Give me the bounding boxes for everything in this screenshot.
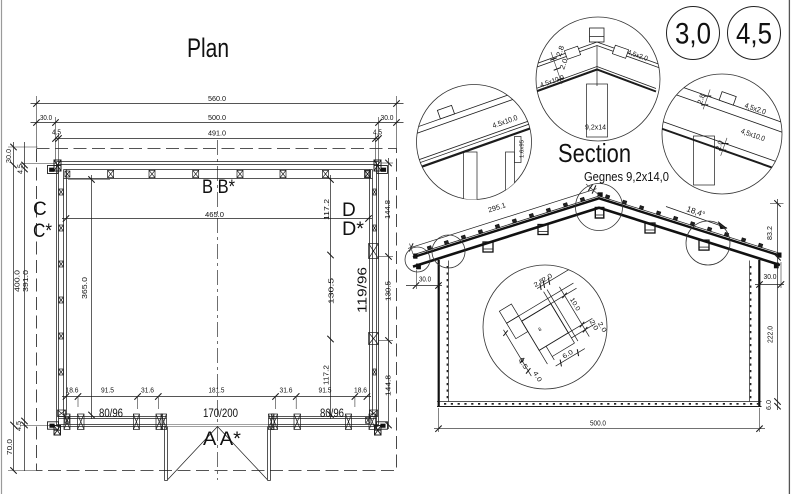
svg-text:1.6x95: 1.6x95 [520, 140, 526, 158]
svg-text:Section: Section [558, 138, 631, 168]
svg-text:Gegnes 9,2x14,0: Gegnes 9,2x14,0 [584, 170, 669, 184]
svg-text:D: D [342, 200, 356, 221]
svg-text:80/96: 80/96 [320, 406, 344, 420]
svg-text:391.0: 391.0 [21, 270, 30, 292]
svg-text:4.5: 4.5 [52, 128, 61, 137]
svg-text:Plan: Plan [187, 33, 229, 63]
svg-text:18.6: 18.6 [66, 386, 79, 395]
svg-text:465.0: 465.0 [205, 212, 224, 219]
svg-text:C: C [33, 199, 47, 220]
svg-text:130.5: 130.5 [384, 281, 393, 301]
svg-text:30.0: 30.0 [419, 275, 431, 284]
svg-text:31.6: 31.6 [141, 386, 154, 395]
svg-text:119/96: 119/96 [355, 267, 370, 313]
svg-text:30.0: 30.0 [381, 113, 394, 122]
svg-text:500.0: 500.0 [208, 113, 226, 122]
svg-text:117.2: 117.2 [322, 199, 331, 220]
svg-text:3,0: 3,0 [675, 18, 711, 51]
svg-text:83.2: 83.2 [765, 226, 774, 240]
svg-text:B B*: B B* [202, 177, 236, 198]
svg-text:144.8: 144.8 [384, 375, 393, 396]
svg-text:31.6: 31.6 [280, 386, 293, 395]
svg-text:222.0: 222.0 [766, 326, 775, 343]
svg-text:181.5: 181.5 [209, 386, 225, 395]
svg-text:70.0: 70.0 [5, 439, 14, 455]
svg-text:130.5: 130.5 [327, 278, 336, 304]
svg-text:80/96: 80/96 [99, 406, 123, 420]
svg-text:491.0: 491.0 [208, 129, 226, 138]
svg-text:30.0: 30.0 [40, 113, 52, 122]
svg-text:4,5: 4,5 [736, 18, 772, 51]
svg-text:117.2: 117.2 [322, 365, 331, 385]
svg-text:D*: D* [342, 219, 365, 240]
svg-text:4.5: 4.5 [16, 164, 25, 174]
svg-text:30.0: 30.0 [4, 149, 13, 163]
svg-text:4.5: 4.5 [14, 421, 23, 431]
svg-text:560.0: 560.0 [208, 94, 226, 103]
svg-text:365.0: 365.0 [80, 277, 89, 299]
svg-text:C*: C* [33, 221, 53, 242]
svg-text:170/200: 170/200 [203, 406, 238, 420]
svg-text:91.5: 91.5 [319, 386, 332, 395]
svg-text:91.5: 91.5 [101, 386, 114, 395]
svg-text:30.0: 30.0 [764, 272, 777, 281]
svg-text:500.0: 500.0 [590, 418, 606, 427]
svg-text:A A*: A A* [203, 429, 242, 450]
svg-text:144.8: 144.8 [383, 200, 392, 219]
svg-text:4.5: 4.5 [373, 128, 382, 137]
svg-text:6.0: 6.0 [764, 400, 773, 410]
svg-text:18.6: 18.6 [354, 386, 367, 395]
svg-text:9,2x14: 9,2x14 [585, 125, 606, 132]
